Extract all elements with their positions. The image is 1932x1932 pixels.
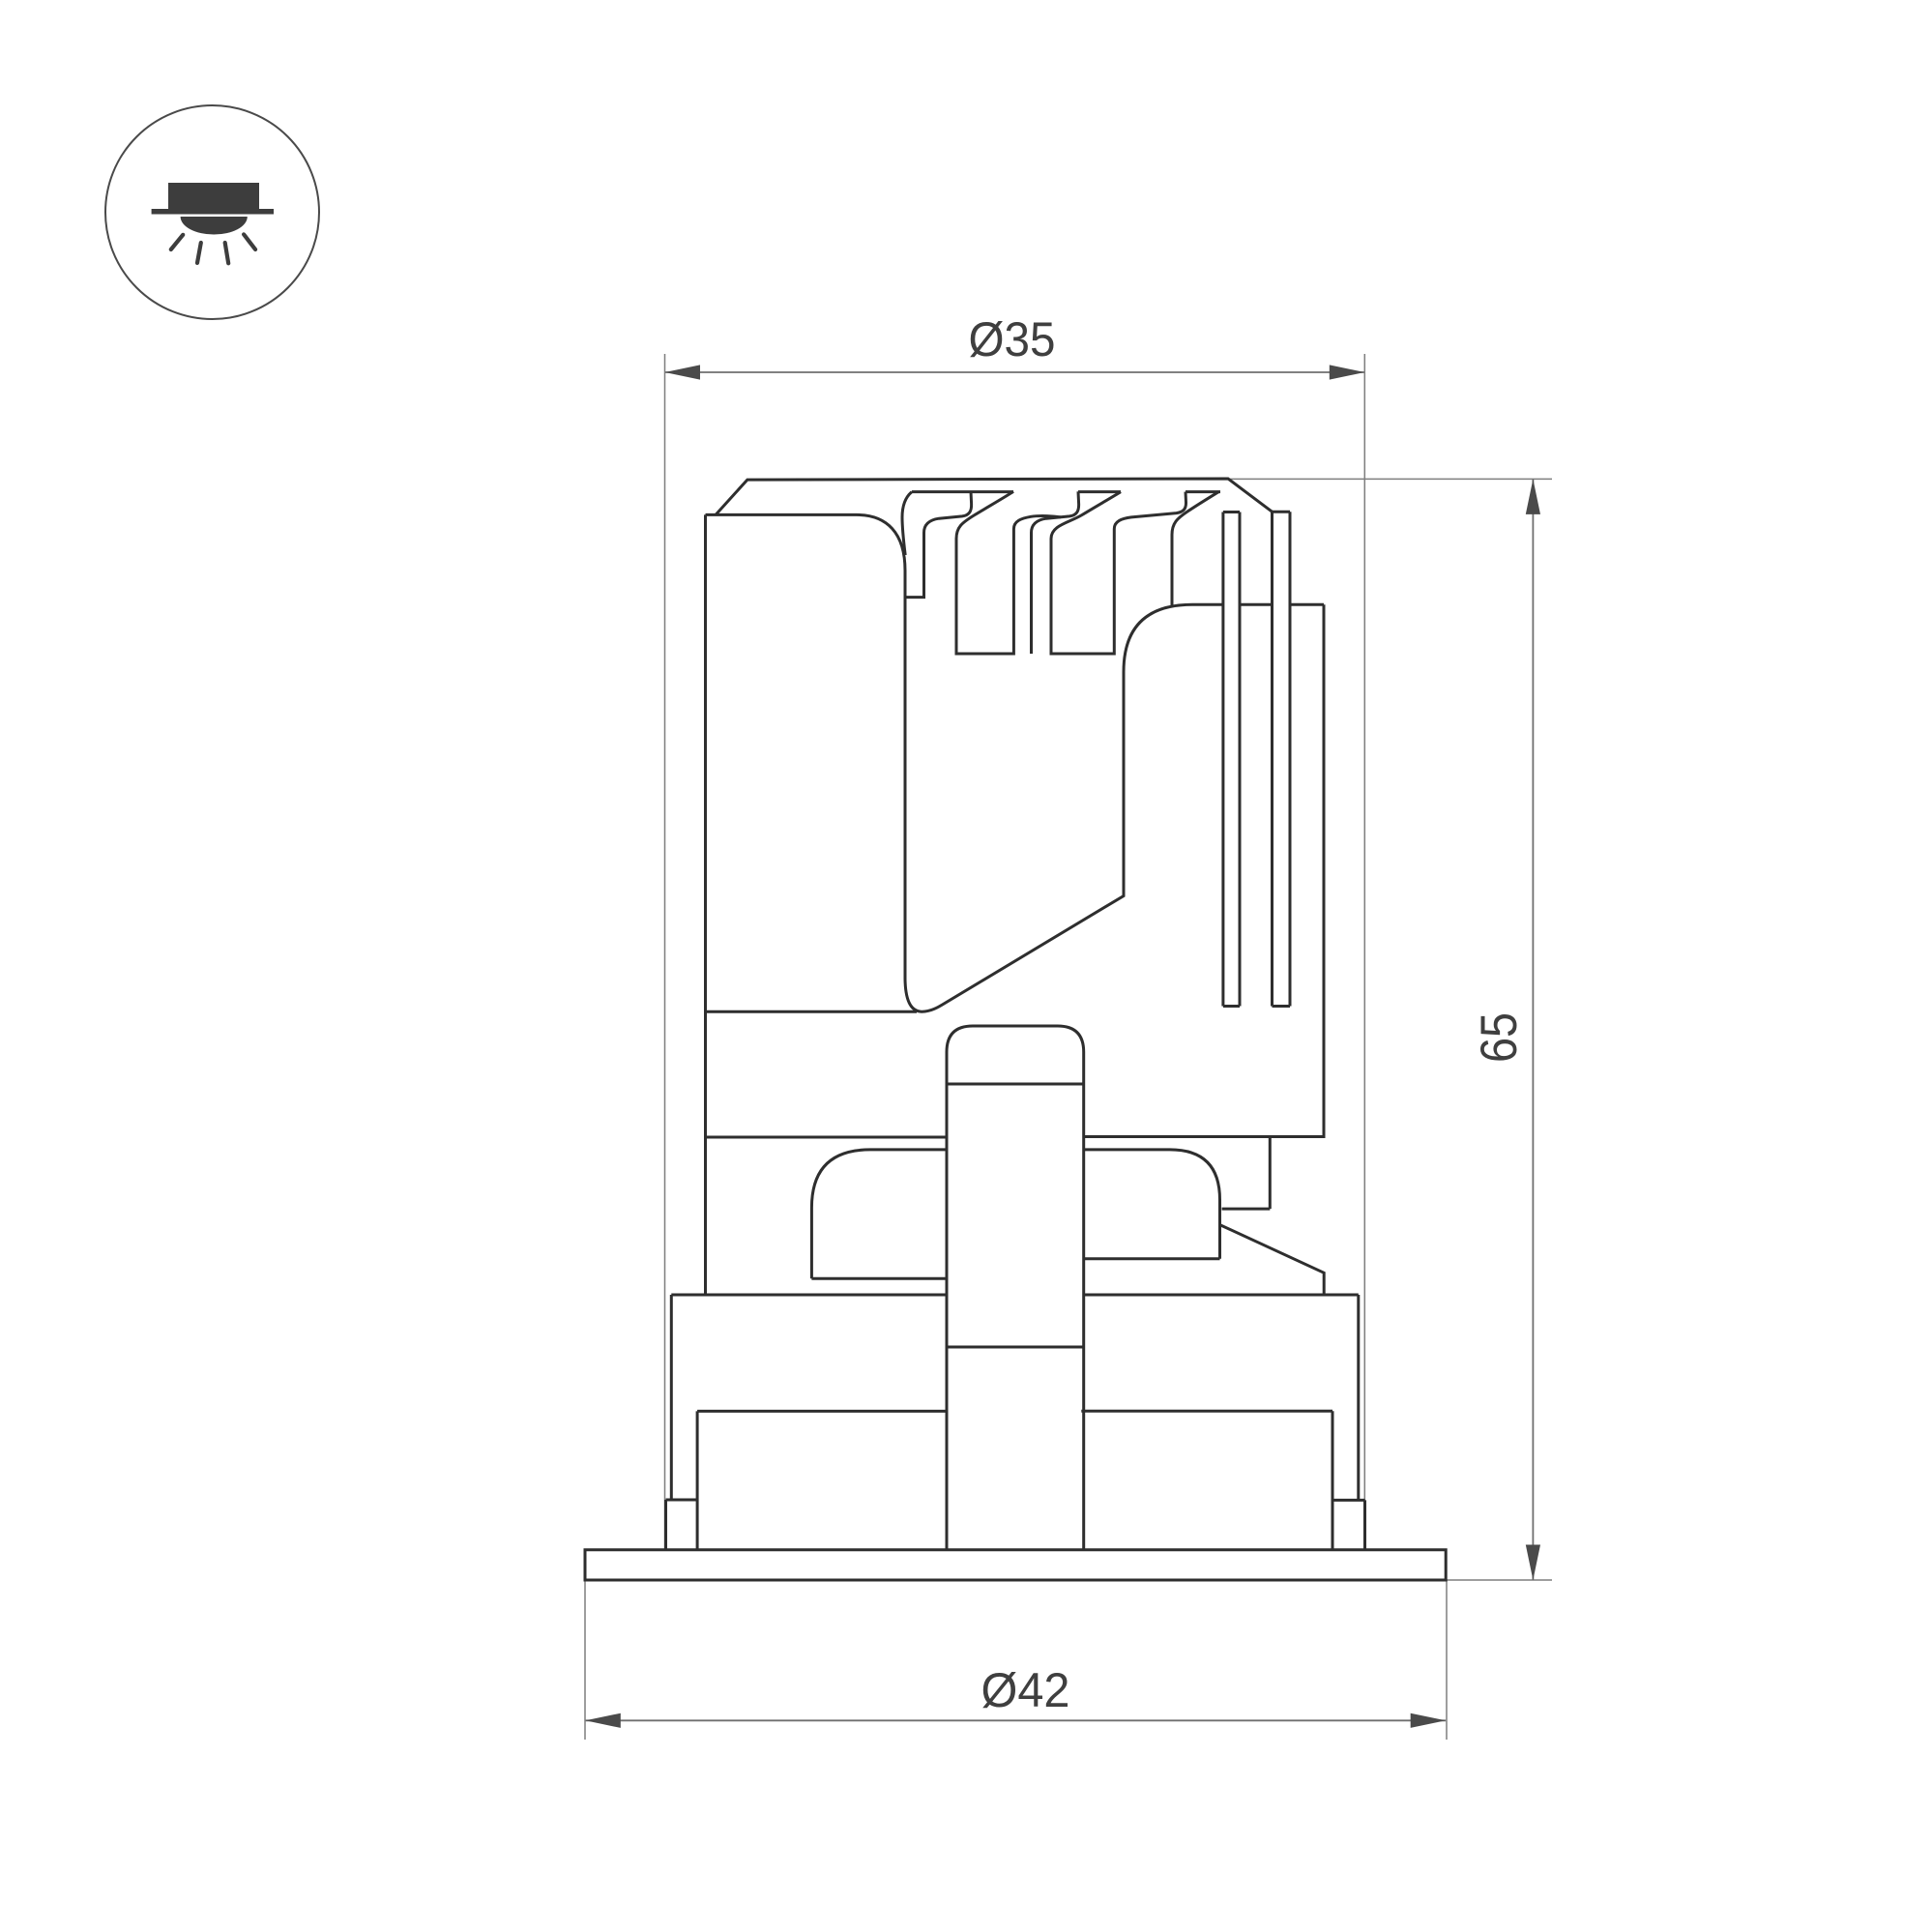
svg-text:Ø42: Ø42 [981,1663,1070,1717]
svg-text:65: 65 [1471,1012,1528,1063]
svg-text:Ø35: Ø35 [969,312,1056,366]
